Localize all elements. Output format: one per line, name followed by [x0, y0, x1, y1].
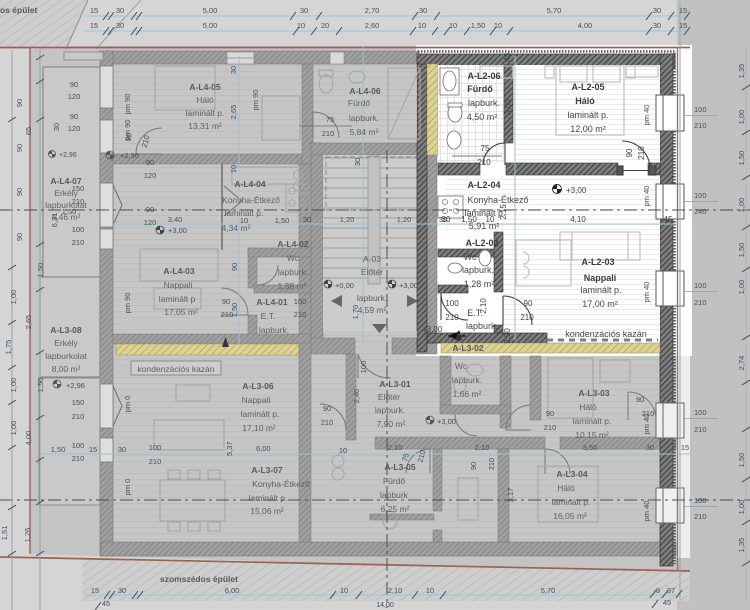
- svg-text:1,50: 1,50: [51, 445, 66, 454]
- svg-text:30: 30: [303, 215, 311, 224]
- svg-text:210: 210: [694, 512, 707, 521]
- svg-text:szomszédos épület: szomszédos épület: [160, 574, 238, 584]
- svg-text:A-L3-01: A-L3-01: [379, 379, 410, 389]
- svg-text:2,60: 2,60: [365, 21, 380, 30]
- svg-text:1,66 m²: 1,66 m²: [453, 389, 482, 399]
- svg-text:4,50 m²: 4,50 m²: [467, 112, 498, 122]
- svg-text:3,50: 3,50: [583, 443, 598, 452]
- svg-text:pm 40: pm 40: [642, 501, 651, 522]
- svg-text:+2,96: +2,96: [66, 381, 85, 390]
- svg-text:Nappali: Nappali: [164, 280, 193, 290]
- svg-text:17,00 m²: 17,00 m²: [582, 299, 618, 309]
- svg-text:30: 30: [52, 123, 61, 131]
- svg-text:210: 210: [520, 313, 534, 322]
- svg-text:100: 100: [694, 408, 707, 417]
- svg-text:kondenzációs kazán: kondenzációs kazán: [565, 329, 647, 339]
- svg-text:Háló: Háló: [196, 95, 214, 105]
- svg-text:210: 210: [694, 425, 707, 434]
- svg-text:4,59 m²: 4,59 m²: [358, 305, 387, 315]
- svg-text:Előtér: Előtér: [378, 392, 400, 402]
- svg-text:15: 15: [90, 6, 98, 15]
- svg-text:100: 100: [694, 281, 707, 290]
- svg-text:45: 45: [503, 52, 512, 61]
- svg-text:Konyha-Étkező: Konyha-Étkező: [222, 195, 280, 205]
- svg-text:Háló: Háló: [575, 96, 595, 106]
- svg-text:kondenzációs kazán: kondenzációs kazán: [137, 364, 214, 374]
- svg-text:120: 120: [68, 92, 81, 101]
- svg-text:laminált p.: laminált p.: [580, 285, 621, 295]
- svg-text:A-L4-02: A-L4-02: [277, 239, 308, 249]
- svg-text:210: 210: [477, 158, 491, 167]
- svg-text:1,50: 1,50: [36, 378, 45, 393]
- svg-text:pm 40: pm 40: [642, 105, 651, 126]
- svg-text:Erkély: Erkély: [54, 338, 78, 348]
- svg-text:30: 30: [116, 6, 124, 15]
- svg-text:5,37: 5,37: [225, 441, 234, 456]
- svg-text:Wc: Wc: [464, 252, 477, 262]
- svg-text:15: 15: [679, 6, 687, 15]
- svg-text:lapburk.: lapburk.: [349, 113, 379, 123]
- svg-text:2,10: 2,10: [388, 443, 403, 452]
- svg-text:2,65: 2,65: [24, 315, 33, 330]
- svg-text:75: 75: [481, 144, 490, 153]
- svg-text:Fürdő: Fürdő: [383, 476, 405, 486]
- svg-text:7,90 m²: 7,90 m²: [377, 419, 406, 429]
- svg-text:1,50: 1,50: [461, 215, 477, 224]
- svg-text:1,35: 1,35: [737, 538, 746, 553]
- svg-text:210: 210: [445, 313, 459, 322]
- svg-text:210: 210: [149, 457, 162, 466]
- svg-text:A-L4-06: A-L4-06: [349, 86, 380, 96]
- svg-text:2,15: 2,15: [499, 204, 508, 220]
- svg-text:laminált p.: laminált p.: [249, 493, 288, 503]
- svg-text:2,40: 2,40: [352, 389, 361, 404]
- svg-text:lapburk.: lapburk.: [466, 321, 498, 331]
- svg-text:A-L3-02: A-L3-02: [452, 343, 483, 353]
- svg-text:A-L2-05: A-L2-05: [571, 82, 604, 92]
- svg-text:1,00: 1,00: [737, 280, 746, 295]
- svg-text:+3,00: +3,00: [168, 226, 187, 235]
- svg-text:30: 30: [118, 445, 126, 454]
- svg-text:1,50: 1,50: [471, 21, 486, 30]
- svg-text:15: 15: [91, 586, 99, 595]
- svg-text:14,00: 14,00: [376, 602, 394, 609]
- svg-text:A-L3-05: A-L3-05: [384, 462, 415, 472]
- svg-text:1,38 m²: 1,38 m²: [278, 281, 307, 291]
- svg-text:+0,00: +0,00: [335, 281, 354, 290]
- svg-text:+3,00: +3,00: [399, 281, 418, 290]
- svg-text:2,10: 2,10: [475, 443, 490, 452]
- svg-text:+2,96: +2,96: [120, 151, 139, 160]
- svg-text:A-L4-01: A-L4-01: [256, 297, 287, 307]
- svg-text:Fürdő: Fürdő: [348, 98, 370, 108]
- svg-text:90: 90: [323, 404, 331, 413]
- svg-text:A-L3-04: A-L3-04: [556, 469, 587, 479]
- svg-text:100: 100: [72, 441, 85, 450]
- svg-text:laminált p.: laminált p.: [573, 416, 612, 426]
- svg-text:A-L3-07: A-L3-07: [251, 465, 282, 475]
- svg-text:A-L2-06: A-L2-06: [467, 71, 500, 81]
- svg-text:1,00: 1,00: [737, 500, 746, 515]
- svg-text:30: 30: [653, 6, 661, 15]
- svg-text:90: 90: [222, 297, 230, 306]
- svg-text:120: 120: [68, 124, 81, 133]
- svg-text:100: 100: [694, 105, 707, 114]
- svg-text:1,20: 1,20: [340, 215, 355, 224]
- svg-text:30: 30: [118, 586, 126, 595]
- svg-text:210: 210: [642, 409, 655, 418]
- svg-text:laminált p: laminált p: [159, 294, 196, 304]
- svg-text:17,05 m²: 17,05 m²: [164, 307, 198, 317]
- svg-text:6,00: 6,00: [225, 586, 240, 595]
- svg-text:90: 90: [230, 263, 239, 271]
- svg-text:90: 90: [15, 99, 24, 107]
- svg-text:17,10 m²: 17,10 m²: [242, 423, 276, 433]
- svg-text:210: 210: [72, 412, 85, 421]
- svg-text:6,25 m²: 6,25 m²: [381, 504, 410, 514]
- svg-text:30: 30: [229, 66, 238, 74]
- svg-text:100: 100: [72, 225, 85, 234]
- svg-text:30: 30: [653, 21, 661, 30]
- svg-text:pm 90: pm 90: [123, 94, 132, 115]
- svg-text:90: 90: [524, 299, 533, 308]
- svg-text:150: 150: [72, 398, 85, 407]
- svg-text:5,70: 5,70: [547, 6, 562, 15]
- svg-text:A-L2-04: A-L2-04: [467, 180, 500, 190]
- svg-text:65: 65: [24, 127, 33, 135]
- svg-text:5,84 m²: 5,84 m²: [350, 127, 379, 137]
- svg-text:100: 100: [694, 496, 707, 505]
- svg-text:45: 45: [663, 598, 671, 607]
- svg-text:+3,00: +3,00: [437, 417, 456, 426]
- svg-text:1,00: 1,00: [737, 198, 746, 213]
- svg-text:lapburk: lapburk: [380, 490, 409, 500]
- svg-text:210: 210: [72, 238, 85, 247]
- svg-text:Fürdő: Fürdő: [467, 84, 493, 94]
- svg-text:10,15 m²: 10,15 m²: [575, 430, 609, 440]
- svg-text:15: 15: [89, 445, 97, 454]
- svg-text:A-L2-02: A-L2-02: [465, 238, 498, 248]
- svg-text:100: 100: [294, 297, 307, 306]
- svg-text:1,50: 1,50: [62, 207, 77, 216]
- svg-text:90: 90: [636, 395, 644, 404]
- svg-text:15,06 m²: 15,06 m²: [250, 506, 284, 516]
- svg-text:210: 210: [321, 418, 334, 427]
- svg-text:Nappali: Nappali: [584, 273, 617, 283]
- svg-text:laminált p.: laminált p.: [241, 409, 280, 419]
- svg-text:pm 0: pm 0: [123, 396, 132, 413]
- svg-text:lapburk.: lapburk.: [375, 405, 405, 415]
- svg-text:15: 15: [681, 443, 689, 452]
- svg-text:90: 90: [546, 409, 554, 418]
- svg-text:120: 120: [144, 171, 157, 180]
- svg-text:1,70: 1,70: [351, 305, 360, 320]
- svg-text:Háló: Háló: [579, 402, 597, 412]
- svg-text:30: 30: [646, 443, 654, 452]
- svg-text:210: 210: [637, 146, 646, 160]
- svg-text:pm 40: pm 40: [642, 282, 651, 303]
- svg-text:15: 15: [90, 21, 98, 30]
- svg-text:Konyha-Étkező: Konyha-Étkező: [252, 479, 310, 489]
- svg-text:100: 100: [694, 191, 707, 200]
- svg-text:10: 10: [240, 216, 248, 225]
- svg-text:+3,00: +3,00: [422, 325, 443, 334]
- svg-text:100: 100: [445, 299, 459, 308]
- svg-text:pm 90: pm 90: [123, 293, 132, 314]
- svg-text:210: 210: [487, 458, 496, 471]
- svg-text:laminált p.: laminált p.: [552, 497, 591, 507]
- svg-text:A-L3-03: A-L3-03: [578, 388, 609, 398]
- svg-text:30: 30: [116, 21, 124, 30]
- svg-text:4,00: 4,00: [578, 21, 593, 30]
- svg-text:1,28 m²: 1,28 m²: [464, 279, 495, 289]
- svg-text:1,35: 1,35: [737, 64, 746, 79]
- svg-text:75: 75: [326, 115, 334, 124]
- svg-text:E.T.: E.T.: [261, 311, 276, 321]
- svg-text:1,50: 1,50: [36, 263, 45, 278]
- svg-text:210: 210: [694, 121, 707, 130]
- svg-text:10: 10: [339, 446, 347, 455]
- svg-text:5,00: 5,00: [203, 6, 218, 15]
- svg-text:A-L3-08: A-L3-08: [50, 325, 81, 335]
- svg-text:lapburk.: lapburk.: [278, 267, 308, 277]
- svg-text:Nappali: Nappali: [242, 395, 271, 405]
- svg-text:2,90: 2,90: [503, 328, 512, 344]
- svg-text:laminált p.: laminált p.: [186, 108, 225, 118]
- svg-text:90: 90: [625, 148, 634, 157]
- svg-text:10: 10: [486, 215, 495, 224]
- svg-text:210: 210: [322, 129, 335, 138]
- svg-text:90: 90: [15, 188, 24, 196]
- svg-text:240: 240: [694, 207, 707, 216]
- svg-text:2,74: 2,74: [737, 356, 746, 371]
- svg-text:210: 210: [694, 298, 707, 307]
- svg-text:90: 90: [146, 158, 154, 167]
- svg-text:3,00: 3,00: [504, 99, 513, 115]
- svg-text:lapburk.: lapburk.: [452, 375, 482, 385]
- svg-text:laminált p.: laminált p.: [567, 110, 608, 120]
- svg-text:A-L4-03: A-L4-03: [163, 266, 194, 276]
- svg-text:A-03: A-03: [363, 254, 381, 264]
- svg-text:1,00: 1,00: [9, 421, 18, 436]
- svg-text:13,31 m²: 13,31 m²: [188, 121, 222, 131]
- svg-text:15: 15: [679, 21, 687, 30]
- svg-text:pm 90: pm 90: [251, 90, 260, 111]
- svg-text:+3,00: +3,00: [566, 186, 587, 195]
- svg-text:100: 100: [359, 361, 368, 374]
- svg-text:90: 90: [70, 80, 78, 89]
- svg-text:3,40: 3,40: [168, 215, 183, 224]
- svg-text:1,00: 1,00: [737, 110, 746, 125]
- svg-text:12,00 m²: 12,00 m²: [570, 124, 606, 134]
- svg-text:Wc: Wc: [287, 253, 300, 263]
- svg-text:lapburk.: lapburk.: [462, 265, 494, 275]
- svg-text:pm 40: pm 40: [642, 186, 651, 207]
- svg-text:1,00: 1,00: [9, 378, 18, 393]
- svg-text:1,51: 1,51: [0, 526, 9, 541]
- svg-text:1,20: 1,20: [397, 215, 412, 224]
- svg-text:1,00: 1,00: [9, 290, 18, 305]
- svg-text:1,26: 1,26: [23, 528, 32, 543]
- svg-text:8,00 m²: 8,00 m²: [52, 364, 81, 374]
- svg-text:10: 10: [340, 586, 348, 595]
- svg-text:8: 8: [656, 586, 660, 595]
- svg-text:90: 90: [15, 144, 24, 152]
- svg-text:Konyha-Étkező: Konyha-Étkező: [467, 195, 528, 205]
- svg-text:A-L2-03: A-L2-03: [581, 257, 614, 267]
- svg-text:45: 45: [102, 599, 110, 608]
- svg-text:A-L4-04: A-L4-04: [234, 179, 265, 189]
- svg-text:1,50: 1,50: [737, 243, 746, 258]
- svg-text:120: 120: [144, 218, 157, 227]
- svg-text:100: 100: [149, 443, 162, 452]
- svg-text:20: 20: [321, 21, 329, 30]
- svg-text:30: 30: [353, 158, 362, 166]
- svg-text:1,50: 1,50: [737, 453, 746, 468]
- svg-text:45: 45: [664, 215, 673, 224]
- svg-text:lapburk.: lapburk.: [357, 293, 387, 303]
- svg-text:90: 90: [70, 112, 78, 121]
- svg-text:4,00: 4,00: [24, 431, 33, 446]
- svg-text:6,00: 6,00: [256, 444, 271, 453]
- svg-text:Wc: Wc: [455, 361, 468, 371]
- svg-text:lapburk.: lapburk.: [468, 98, 500, 108]
- svg-text:10: 10: [418, 21, 426, 30]
- svg-text:2,70: 2,70: [365, 6, 380, 15]
- svg-text:pm 0: pm 0: [123, 479, 132, 496]
- svg-text:1,50: 1,50: [275, 216, 290, 225]
- svg-text:1,75: 1,75: [4, 340, 13, 355]
- svg-text:Előtér: Előtér: [361, 267, 383, 277]
- svg-text:Háló: Háló: [557, 483, 575, 493]
- svg-text:+2,96: +2,96: [59, 152, 77, 159]
- svg-text:lapburk.: lapburk.: [259, 325, 289, 335]
- svg-text:2,10: 2,10: [388, 586, 403, 595]
- svg-text:210: 210: [72, 454, 85, 463]
- svg-text:10: 10: [229, 165, 238, 173]
- svg-text:5,00: 5,00: [203, 21, 218, 30]
- svg-text:90: 90: [146, 205, 154, 214]
- svg-text:10: 10: [426, 586, 434, 595]
- svg-text:3,17: 3,17: [506, 488, 515, 503]
- svg-text:16,05 m²: 16,05 m²: [553, 511, 587, 521]
- svg-text:30: 30: [419, 6, 427, 15]
- svg-text:150: 150: [72, 184, 85, 193]
- svg-text:2,65: 2,65: [229, 105, 238, 120]
- svg-text:5,70: 5,70: [541, 586, 556, 595]
- svg-text:90: 90: [15, 233, 24, 241]
- svg-text:2,10: 2,10: [479, 298, 488, 314]
- svg-text:30: 30: [300, 6, 308, 15]
- svg-text:210: 210: [72, 197, 85, 206]
- svg-text:30: 30: [442, 215, 451, 224]
- svg-text:90: 90: [469, 462, 478, 470]
- svg-text:lapburkolat: lapburkolat: [45, 351, 87, 361]
- svg-text:210: 210: [544, 423, 557, 432]
- svg-text:4,10: 4,10: [570, 215, 586, 224]
- svg-text:10: 10: [449, 21, 457, 30]
- svg-text:os épület: os épület: [0, 5, 37, 15]
- svg-text:A-L3-06: A-L3-06: [242, 381, 273, 391]
- svg-text:210: 210: [294, 310, 307, 319]
- svg-text:1,50: 1,50: [230, 303, 239, 318]
- svg-text:A-L4-05: A-L4-05: [189, 82, 220, 92]
- svg-text:1,50: 1,50: [737, 151, 746, 166]
